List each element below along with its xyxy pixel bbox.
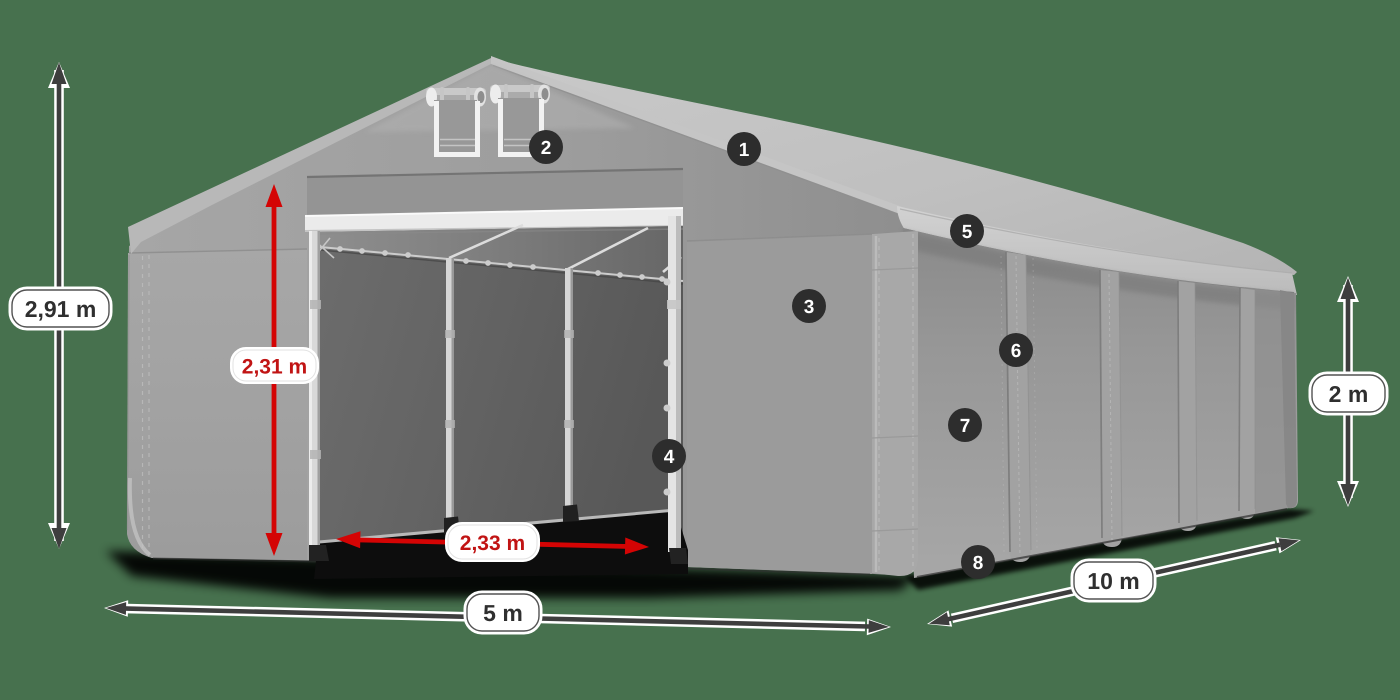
svg-text:10 m: 10 m [1087,568,1139,594]
svg-text:6: 6 [1011,341,1022,362]
svg-text:2,91 m: 2,91 m [25,296,97,322]
svg-text:7: 7 [960,416,971,437]
svg-text:8: 8 [973,553,984,574]
svg-text:2 m: 2 m [1329,381,1369,407]
svg-text:4: 4 [664,447,675,468]
svg-text:2,33 m: 2,33 m [460,532,525,555]
svg-text:5: 5 [962,222,973,243]
svg-text:5 m: 5 m [483,600,523,626]
svg-text:2,31 m: 2,31 m [242,356,307,379]
svg-text:3: 3 [804,297,815,318]
svg-text:1: 1 [739,140,750,161]
svg-text:2: 2 [541,138,552,159]
